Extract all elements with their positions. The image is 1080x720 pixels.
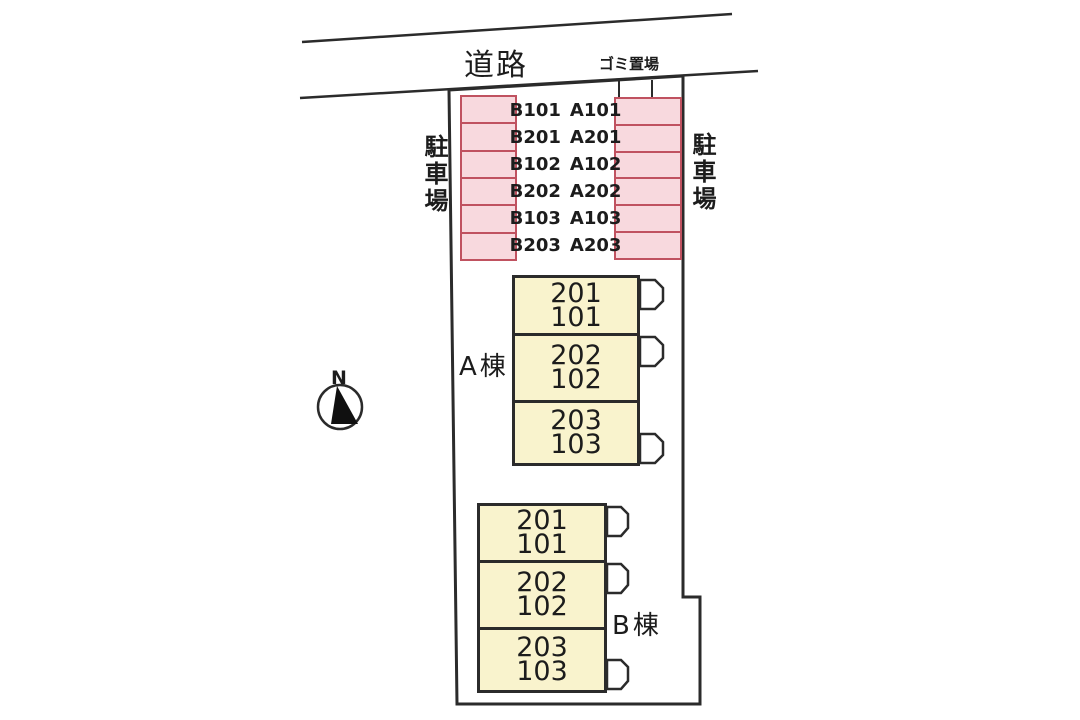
parking-label-row: B202 A202 [510, 183, 622, 201]
building-a-bay-window-2 [640, 337, 663, 366]
parking-area-label-left: 駐車場 [423, 134, 450, 215]
building-b-bay-window-3 [607, 660, 628, 689]
parking-space-label: B103 [510, 210, 561, 228]
garbage-area-label: ゴミ置場 [599, 53, 659, 74]
parking-space-a101 [616, 99, 680, 126]
parking-space-b202 [462, 179, 515, 206]
parking-label-row: B103 A103 [510, 210, 622, 228]
parking-space-b201 [462, 124, 515, 151]
building-a-label: A棟 [459, 346, 509, 383]
parking-label-row: B102 A102 [510, 156, 622, 174]
parking-label-row: B201 A201 [510, 129, 622, 147]
unit-number-lower: 101 [516, 533, 568, 557]
parking-space-a102 [616, 153, 680, 180]
unit-number-lower: 103 [550, 433, 602, 457]
site-plan: N 道路 ゴミ置場 駐車場 駐車場 B101 A101 B201 A201 B1… [0, 0, 1080, 720]
building-a-unit-3: 203 103 [515, 403, 637, 463]
parking-space-b203 [462, 234, 515, 259]
parking-space-label: B101 [510, 102, 561, 120]
parking-space-label: A103 [570, 210, 622, 228]
parking-space-label: A102 [570, 156, 622, 174]
building-a-unit-1: 201 101 [515, 278, 637, 336]
compass-north-label: N [331, 367, 347, 389]
parking-space-b103 [462, 206, 515, 233]
unit-number-lower: 101 [550, 306, 602, 330]
building-b-unit-2: 202 102 [480, 563, 604, 630]
parking-space-label: B201 [510, 129, 561, 147]
building-b-unit-1: 201 101 [480, 506, 604, 563]
building-b-label: B棟 [612, 605, 662, 642]
unit-number-lower: 102 [516, 595, 568, 619]
parking-space-labels: B101 A101 B201 A201 B102 A102 B202 A202 … [517, 97, 614, 260]
parking-space-b102 [462, 152, 515, 179]
building-a-bay-window-1 [640, 280, 663, 309]
building-a-unit-2: 202 102 [515, 336, 637, 403]
parking-space-b101 [462, 97, 515, 124]
compass-needle-icon [331, 386, 358, 424]
parking-space-a103 [616, 206, 680, 233]
parking-space-label: B203 [510, 237, 561, 255]
building-b-unit-3: 203 103 [480, 630, 604, 690]
unit-number-lower: 103 [516, 660, 568, 684]
building-b-bay-window-2 [607, 564, 628, 593]
parking-space-label: A203 [570, 237, 622, 255]
parking-space-label: B102 [510, 156, 561, 174]
parking-area-label-right: 駐車場 [691, 132, 718, 213]
parking-space-a202 [616, 179, 680, 206]
parking-space-label: A202 [570, 183, 622, 201]
unit-number-lower: 102 [550, 368, 602, 392]
road-label: 道路 [464, 40, 528, 84]
building-a: 201 101 202 102 203 103 [512, 275, 640, 466]
parking-label-row: B101 A101 [510, 102, 622, 120]
building-a-bay-window-3 [640, 434, 663, 463]
parking-space-a203 [616, 233, 680, 258]
parking-label-row: B203 A203 [510, 237, 622, 255]
parking-space-label: A101 [570, 102, 622, 120]
building-b-bay-window-1 [607, 507, 628, 536]
parking-space-a201 [616, 126, 680, 153]
parking-column-a [614, 97, 682, 260]
parking-space-label: A201 [570, 129, 622, 147]
parking-column-b [460, 95, 517, 261]
building-b: 201 101 202 102 203 103 [477, 503, 607, 693]
parking-space-label: B202 [510, 183, 561, 201]
road-line-top [302, 14, 732, 42]
